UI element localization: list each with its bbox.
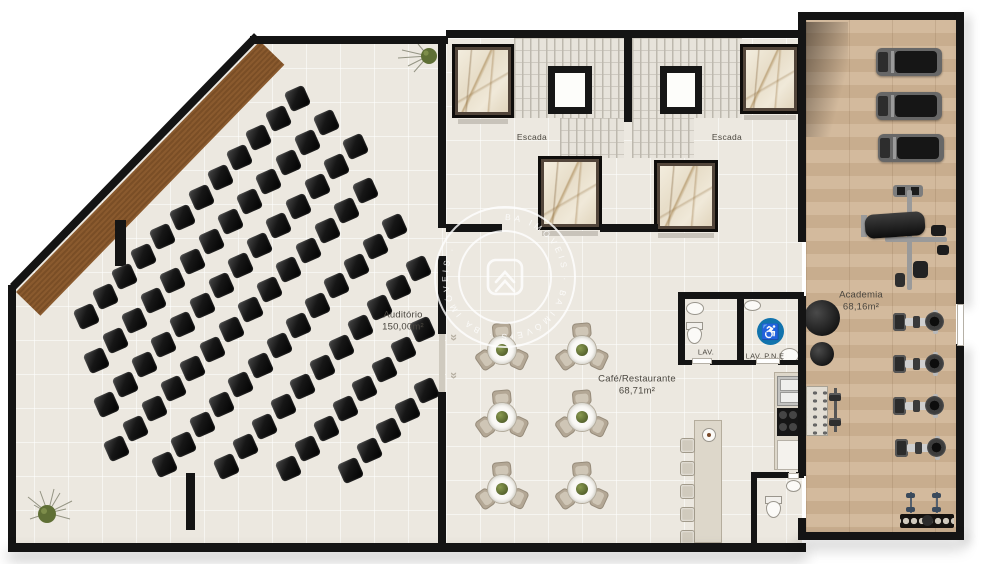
- door-swing-icon: »: [447, 334, 462, 341]
- lav-pne-sink: [744, 300, 761, 311]
- auditorium-seat: [102, 434, 130, 462]
- auditorium-seat: [208, 391, 236, 419]
- auditorium-seat: [256, 276, 284, 304]
- exercise-ball: [804, 300, 840, 336]
- table-plant-icon: [576, 411, 588, 423]
- auditorium-seat: [188, 291, 216, 319]
- elevator-marble-floor: [660, 166, 712, 226]
- auditorium-seat: [179, 355, 207, 383]
- auditorium-seat: [385, 274, 413, 302]
- auditorium-seat: [189, 411, 217, 439]
- barbell: [829, 388, 841, 432]
- auditorium-seat: [251, 413, 279, 441]
- auditorium-seat: [361, 232, 389, 260]
- elevator-marble-floor: [458, 50, 508, 112]
- auditorium-seat: [169, 311, 197, 339]
- cafe-table: [474, 461, 530, 517]
- auditorium-label: Auditório 150,00m²: [382, 310, 424, 335]
- auditorium-seat: [217, 315, 245, 343]
- lav-label: LAV.: [698, 348, 714, 357]
- table-plant-icon: [576, 483, 588, 495]
- toilet: [765, 496, 780, 517]
- stair-left-label: Escada: [517, 132, 547, 142]
- auditorium-seat: [141, 395, 169, 423]
- stair-right-label: Escada: [712, 132, 742, 142]
- cafe-table: [474, 322, 530, 378]
- auditorium-seat: [255, 168, 283, 196]
- auditorium-seat: [246, 351, 274, 379]
- auditorium-seat: [375, 417, 403, 445]
- plant-icon: [20, 485, 80, 540]
- auditorium-seat: [265, 331, 293, 359]
- auditorium-seat: [217, 208, 245, 236]
- auditorium-seat: [370, 355, 398, 383]
- stair-left-landing: [548, 66, 592, 114]
- table-plant-icon: [576, 344, 588, 356]
- stair-right-lower: [632, 118, 694, 158]
- auditorium-seat: [245, 124, 273, 152]
- treadmill: [878, 134, 944, 162]
- auditorium-seat: [187, 183, 215, 211]
- wheelchair-icon: ♿: [757, 318, 784, 345]
- auditorium-seat: [236, 188, 264, 216]
- auditorium-seat: [265, 212, 293, 240]
- auditorium-seat: [355, 436, 383, 464]
- bar-stool: [680, 484, 695, 499]
- exercise-bike: [895, 436, 945, 460]
- deck-door: [115, 220, 126, 266]
- auditorium-seat: [308, 353, 336, 381]
- exercise-bike: [893, 310, 943, 334]
- auditorium-seat: [198, 335, 226, 363]
- auditorium-seat: [121, 414, 149, 442]
- elevator-marble-floor: [544, 162, 596, 224]
- auditorium-seat: [237, 296, 265, 324]
- elevator-cab: [452, 44, 514, 118]
- auditorium-seat: [246, 232, 274, 260]
- auditorium-seat: [304, 292, 332, 320]
- auditorium-seat: [313, 415, 341, 443]
- table-plant-icon: [496, 344, 508, 356]
- plant-icon: [388, 40, 443, 85]
- auditorium-seat: [197, 227, 225, 255]
- auditorium-seat: [82, 346, 110, 374]
- cafe-label: Café/Restaurante 68,71m²: [598, 374, 676, 399]
- auditorium-seat: [342, 252, 370, 280]
- stove: [777, 408, 799, 436]
- auditorium-seat: [207, 271, 235, 299]
- exercise-bike: [893, 352, 943, 376]
- auditorium-seat: [212, 452, 240, 480]
- sink: [786, 480, 801, 492]
- auditorium-seat: [342, 133, 370, 161]
- auditorium-seat: [130, 243, 158, 271]
- auditorium-seat: [381, 213, 409, 241]
- auditorium-seat: [140, 287, 168, 315]
- door-swing-icon: »: [447, 372, 462, 379]
- auditorium-seat: [289, 373, 317, 401]
- auditorium-seat: [231, 432, 259, 460]
- dumbbell-rack: [806, 386, 828, 436]
- bar-stool: [680, 461, 695, 476]
- auditorium-seat: [389, 335, 417, 363]
- table-plant-icon: [496, 411, 508, 423]
- auditorium-seat: [149, 223, 177, 251]
- cafe-table: [554, 461, 610, 517]
- auditorium-seat: [227, 371, 255, 399]
- gym-label: Academia 68,16m²: [839, 290, 883, 315]
- auditorium-seat: [283, 84, 311, 112]
- auditorium-seat: [160, 375, 188, 403]
- exercise-ball: [810, 342, 834, 366]
- auditorium-seat: [327, 333, 355, 361]
- auditorium-seat: [168, 203, 196, 231]
- auditorium-seat: [347, 314, 375, 342]
- auditorium-seat: [150, 331, 178, 359]
- auditorium-seat: [404, 254, 432, 282]
- auditorium-seat: [294, 236, 322, 264]
- auditorium-seat: [332, 395, 360, 423]
- small-dumbbell-icon: [932, 492, 941, 513]
- auditorium-seat: [313, 216, 341, 244]
- exercise-bike: [893, 394, 943, 418]
- treadmill: [876, 92, 942, 120]
- auditorium-seat: [323, 153, 351, 181]
- elevator-cab: [740, 44, 800, 114]
- auditorium-seat: [111, 263, 139, 291]
- auditorium-seat: [333, 197, 361, 225]
- auditorium-seat: [169, 430, 197, 458]
- auditorium-seat: [72, 302, 100, 330]
- stair-left-lower: [560, 118, 624, 158]
- floor-plan: ♿ » » Auditório 150,00m² Café/Restaurant…: [0, 0, 1000, 564]
- auditorium-seat: [207, 164, 235, 192]
- weight-machine: [855, 185, 955, 295]
- small-dumbbell-icon: [906, 492, 915, 513]
- lav-sink: [686, 302, 704, 315]
- auditorium-seat: [323, 272, 351, 300]
- auditorium-seat: [159, 267, 187, 295]
- gym-shadow: [806, 22, 848, 137]
- auditorium-seat: [150, 450, 178, 478]
- table-plant-icon: [496, 483, 508, 495]
- stair-right-landing: [660, 66, 702, 114]
- elevator-marble-floor: [746, 50, 794, 108]
- auditorium-seat: [92, 390, 120, 418]
- auditorium-seat: [284, 192, 312, 220]
- auditorium-seat: [226, 144, 254, 172]
- cafe-table: [474, 389, 530, 445]
- auditorium-seat: [352, 177, 380, 205]
- wall-stub: [186, 473, 195, 530]
- auditorium-seat: [313, 109, 341, 137]
- auditorium-seat: [270, 393, 298, 421]
- bar-stool: [680, 507, 695, 522]
- auditorium-seat: [274, 148, 302, 176]
- bar-stool: [680, 438, 695, 453]
- auditorium-seat: [178, 247, 206, 275]
- elevator-cab: [538, 156, 602, 230]
- auditorium-seat: [91, 282, 119, 310]
- treadmill: [876, 48, 942, 76]
- auditorium-seat: [101, 326, 129, 354]
- auditorium-seat: [131, 351, 159, 379]
- auditorium-seat: [111, 370, 139, 398]
- auditorium-seat: [264, 104, 292, 132]
- auditorium-seat: [274, 454, 302, 482]
- elevator-cab: [654, 160, 718, 232]
- auditorium-seat: [413, 377, 441, 405]
- auditorium-seat: [303, 172, 331, 200]
- auditorium-seat: [394, 397, 422, 425]
- cafe-table: [554, 322, 610, 378]
- auditorium-seat: [227, 252, 255, 280]
- auditorium-seat: [336, 456, 364, 484]
- auditorium-seat: [275, 256, 303, 284]
- auditorium-seat: [293, 128, 321, 156]
- auditorium-seat: [351, 375, 379, 403]
- auditorium-seat: [285, 312, 313, 340]
- auditorium-seat: [293, 434, 321, 462]
- auditorium-seat: [121, 307, 149, 335]
